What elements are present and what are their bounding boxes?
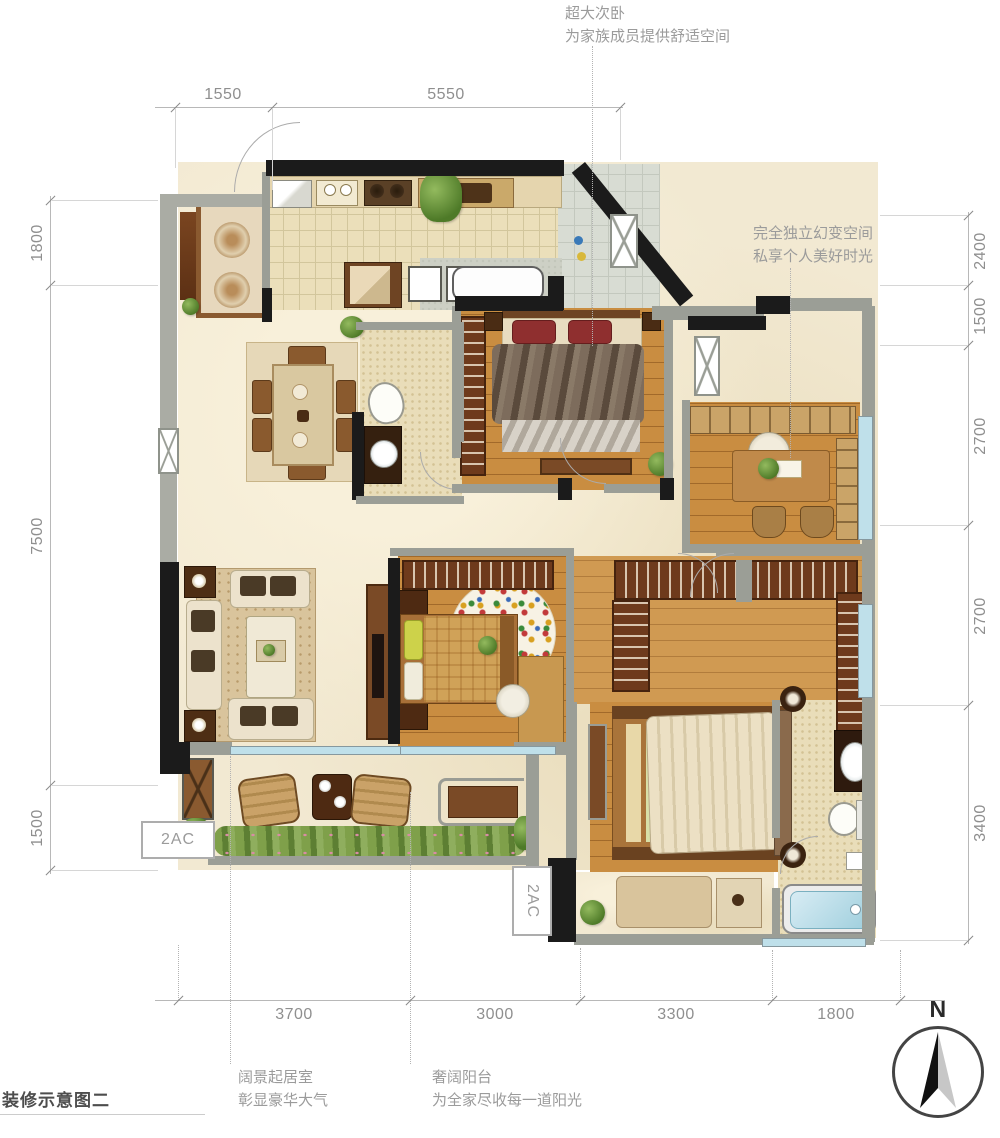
wall-bedroom1-step xyxy=(548,276,564,310)
dim-bottom-1800: 1800 xyxy=(806,1006,866,1024)
compass-label: N xyxy=(918,996,958,1023)
bedroom1-pillow-right xyxy=(568,320,612,344)
living-sofa-top-cushion1 xyxy=(240,576,266,596)
kitchen-sink-bowl xyxy=(324,184,336,196)
dim-left-ext1 xyxy=(52,200,158,201)
study-bookshelf-right xyxy=(836,438,858,540)
dim-bottom-3000: 3000 xyxy=(465,1006,525,1024)
bedroom2-blanket xyxy=(424,616,508,702)
shaft-porch xyxy=(610,214,638,268)
tv-screen xyxy=(372,634,384,698)
dim-right-ext4 xyxy=(880,525,968,526)
washer-left xyxy=(408,266,442,302)
wall-master-top xyxy=(716,548,866,556)
wall-bedroom1-topleft xyxy=(455,296,563,311)
bath1-sink xyxy=(370,440,398,468)
wall-bedroom1-bottom-left xyxy=(452,484,558,493)
wall-bedroom2-right xyxy=(566,556,574,702)
wall-left-corner xyxy=(160,742,190,774)
dim-bottom-ext4 xyxy=(772,950,773,1000)
dim-top-ext3 xyxy=(620,108,621,160)
dim-right-ext3 xyxy=(880,345,968,346)
bedroom2-plant xyxy=(478,636,497,655)
living-sofa-left-cushion2 xyxy=(191,650,215,672)
dim-left-1800: 1800 xyxy=(29,213,47,273)
dim-bottom-ext5 xyxy=(900,950,901,1000)
porch-dot-blue xyxy=(574,236,583,245)
wall-topleft xyxy=(160,194,270,207)
living-lamp-top xyxy=(192,574,206,588)
wall-topright xyxy=(788,298,872,311)
wall-master-left xyxy=(566,702,577,860)
entry-plant xyxy=(182,298,199,315)
dining-chair-left2 xyxy=(252,418,272,452)
wall-bath1-bottom xyxy=(356,496,464,504)
kitchen-counter xyxy=(268,176,562,208)
master-bench-dot xyxy=(732,894,744,906)
dim-right-ext6 xyxy=(880,940,968,941)
wall-left-outer xyxy=(160,194,177,564)
wall-corridor-nub2 xyxy=(660,478,674,500)
master-rug-stripe1 xyxy=(626,724,641,842)
dim-right-ext1 xyxy=(880,215,968,216)
dim-right-line xyxy=(968,212,969,944)
master-nightstand-top xyxy=(780,686,806,712)
dim-left-ext4 xyxy=(52,870,158,871)
dim-right-1500: 1500 xyxy=(972,286,990,346)
entry-cabinet xyxy=(180,212,196,300)
title-rule xyxy=(0,1114,205,1115)
wall-bath2-left-bottom xyxy=(772,888,780,938)
living-sofa-top-cushion2 xyxy=(270,576,296,596)
study-guest-chair1 xyxy=(752,506,786,538)
wall-bedroom1-right xyxy=(664,306,673,492)
dining-table-setting2 xyxy=(292,432,308,448)
dim-top-line xyxy=(155,107,623,108)
leader-top-bedroom xyxy=(592,46,593,346)
stove-burner-right xyxy=(390,184,404,198)
wall-balcony-bottom xyxy=(208,856,530,865)
bedroom1-nightstand-left xyxy=(484,312,503,331)
dim-right-2700b: 2700 xyxy=(972,586,990,646)
study-door-plant xyxy=(758,458,779,479)
study-guest-chair2 xyxy=(800,506,834,538)
page-title: 装修示意图二 xyxy=(2,1086,110,1111)
compass-needle-dark xyxy=(920,1032,938,1108)
dim-left-ext3 xyxy=(52,785,158,786)
wall-left-lower xyxy=(160,562,179,746)
lounge-chair-left xyxy=(237,772,301,830)
living-sofa-bottom-cushion2 xyxy=(272,706,298,726)
lounge-chair-right xyxy=(350,773,413,829)
dim-right-2400: 2400 xyxy=(972,221,990,281)
annotation-balcony: 奢阔阳台 为全家尽收每一道阳光 xyxy=(432,1066,582,1113)
window-study-right xyxy=(858,416,873,540)
wall-study-top xyxy=(688,316,766,330)
entry-door-arc xyxy=(234,122,300,192)
annotation-living-line2: 彰显豪华大气 xyxy=(238,1089,328,1112)
dining-chair-left1 xyxy=(252,380,272,414)
wall-bedroom2-left xyxy=(388,558,400,744)
dim-top-ext1 xyxy=(175,108,176,168)
wall-corridor-nub1 xyxy=(558,478,572,500)
wall-corridor xyxy=(390,548,574,556)
living-sofa-bottom-cushion1 xyxy=(240,706,266,726)
ac-unit-left-label: 2AC xyxy=(161,831,195,849)
dim-left-7500: 7500 xyxy=(29,506,47,566)
wall-kitchen-nub xyxy=(262,288,272,322)
shaft-hall xyxy=(694,336,720,396)
entry-rug-medallion-bottom xyxy=(214,272,250,308)
porch-dot-yellow xyxy=(577,252,586,261)
leader-living xyxy=(230,756,231,1064)
dim-left-line xyxy=(50,196,51,874)
wall-center-bottom xyxy=(548,858,576,942)
master-bed xyxy=(646,712,781,854)
dining-centerpiece xyxy=(297,410,309,422)
bedroom1-blanket xyxy=(492,344,644,424)
dim-bottom-line xyxy=(155,1000,945,1001)
bedroom2-pillow-yellow xyxy=(404,620,423,660)
annotation-top-bedroom-line2: 为家族成员提供舒适空间 xyxy=(565,25,730,48)
balcony-hedge xyxy=(214,826,526,856)
dim-right-ext5 xyxy=(880,705,968,706)
annotation-top-bedroom-line1: 超大次卧 xyxy=(565,2,730,25)
entry-rug-medallion-top xyxy=(214,222,250,258)
annotation-living-line1: 阔景起居室 xyxy=(238,1066,328,1089)
wall-bath1-top xyxy=(356,322,462,330)
dim-right-3400: 3400 xyxy=(972,793,990,853)
wall-balcony-right xyxy=(526,755,539,870)
leader-balcony xyxy=(410,792,411,1064)
master-dresser xyxy=(588,724,607,820)
living-lamp-bottom xyxy=(192,718,206,732)
dim-bottom-3700: 3700 xyxy=(264,1006,324,1024)
dim-right-ext2 xyxy=(880,285,968,286)
wall-study-topright xyxy=(756,296,790,314)
master-bench xyxy=(616,876,712,928)
wall-bedroom1-left xyxy=(452,306,461,458)
balcony-cup2 xyxy=(334,796,346,808)
dim-top-ext2 xyxy=(272,108,273,190)
dim-bottom-ext3 xyxy=(580,948,581,1000)
annotation-study-line2: 私享个人美好时光 xyxy=(753,245,873,268)
window-bath2-bottom xyxy=(762,938,866,947)
dim-bottom-3300: 3300 xyxy=(646,1006,706,1024)
master-plant xyxy=(580,900,605,925)
wall-kitchen-top xyxy=(266,160,564,176)
dim-top-1550: 1550 xyxy=(193,86,253,104)
dim-left-1500: 1500 xyxy=(29,798,47,858)
master-wardrobe-left xyxy=(612,600,650,692)
window-master-right xyxy=(858,604,873,698)
balcony-cup1 xyxy=(319,780,331,792)
kitchen-lower-inset xyxy=(350,266,390,304)
leader-study xyxy=(790,268,791,458)
living-sofa-left-cushion1 xyxy=(191,610,215,632)
bedroom2-pillow-white xyxy=(404,662,423,700)
ac-unit-left: 2AC xyxy=(141,821,215,859)
annotation-study: 完全独立幻变空间 私享个人美好时光 xyxy=(753,222,873,269)
study-desk-papers xyxy=(776,460,802,478)
coffee-table-plant xyxy=(263,644,275,656)
dim-top-5550: 5550 xyxy=(416,86,476,104)
study-bookshelf-top xyxy=(690,406,856,434)
closet-column xyxy=(736,560,752,602)
bedroom1-pillow-left xyxy=(512,320,556,344)
annotation-living: 阔景起居室 彰显豪华大气 xyxy=(238,1066,328,1113)
bedroom2-nightstand-bottom xyxy=(398,700,428,730)
ac-unit-bottom: 2AC xyxy=(512,866,552,936)
bathtub-drain xyxy=(850,904,861,915)
kitchen-sink-bowl2 xyxy=(340,184,352,196)
annotation-balcony-line2: 为全家尽收每一道阳光 xyxy=(432,1089,582,1112)
balcony-table xyxy=(312,774,352,820)
shaft-left-wall xyxy=(158,428,179,474)
stove-burner-left xyxy=(370,184,384,198)
window-bedroom2 xyxy=(400,746,556,755)
bedroom2-wardrobe xyxy=(402,560,554,590)
annotation-study-line1: 完全独立幻变空间 xyxy=(753,222,873,245)
bath1-vanity-wall xyxy=(352,412,364,500)
floorplan-page: 2AC 2AC 1550 5550 1800 7500 1500 2400 15… xyxy=(0,0,1000,1138)
kitchen-sink xyxy=(316,180,358,206)
bedroom2-chair xyxy=(496,684,530,718)
porch-plant xyxy=(420,172,462,222)
dim-left-ext2 xyxy=(52,285,158,286)
dining-table-setting1 xyxy=(292,384,308,400)
dining-chair-right1 xyxy=(336,380,356,414)
wall-bath2-left-top xyxy=(772,700,780,838)
compass-needle-light xyxy=(938,1032,956,1108)
annotation-balcony-line1: 奢阔阳台 xyxy=(432,1066,582,1089)
compass-needle xyxy=(908,1028,968,1112)
dim-bottom-ext1 xyxy=(178,945,179,1000)
annotation-top-bedroom: 超大次卧 为家族成员提供舒适空间 xyxy=(565,2,730,49)
wall-study-left xyxy=(682,400,690,548)
balcony-long-table xyxy=(448,786,518,818)
ac-unit-bottom-label: 2AC xyxy=(523,884,541,918)
dim-right-2700a: 2700 xyxy=(972,406,990,466)
